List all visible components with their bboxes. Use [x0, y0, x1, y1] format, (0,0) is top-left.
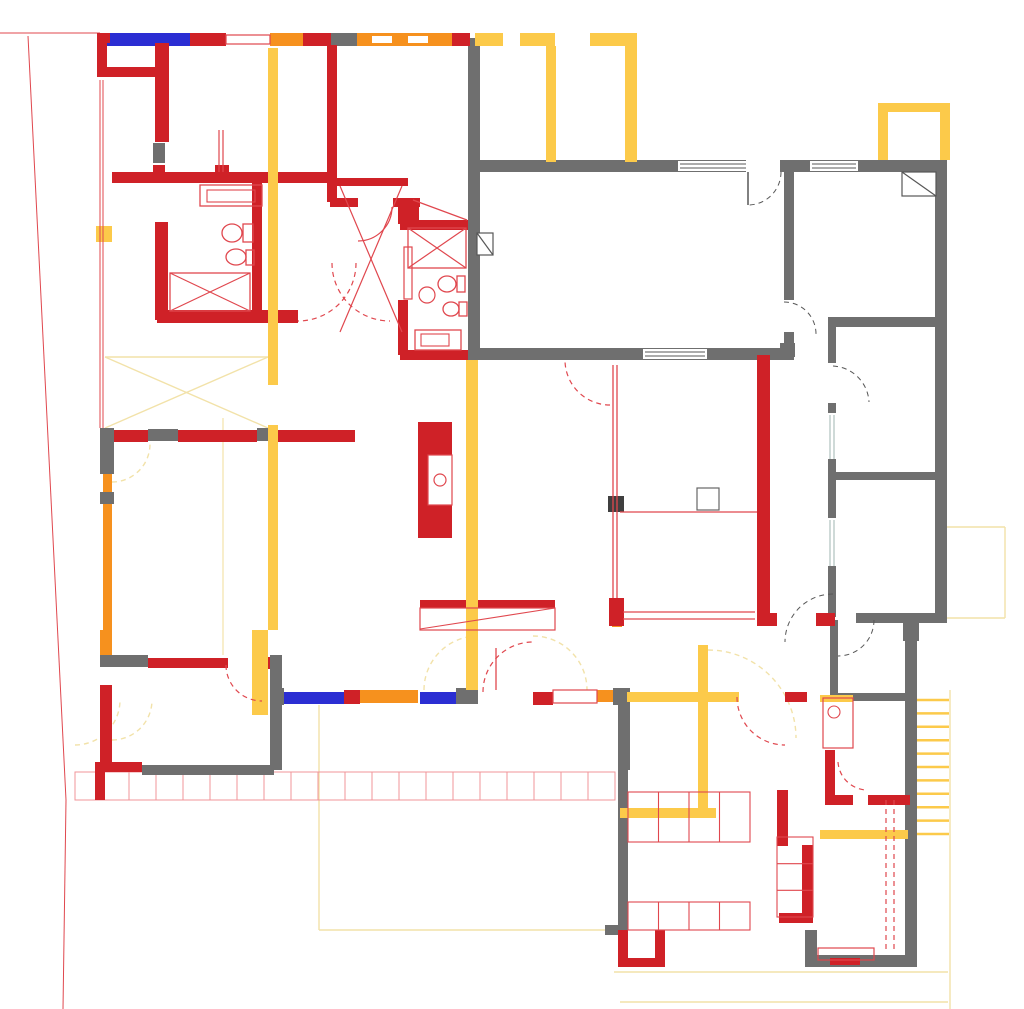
wall-existing — [828, 472, 947, 480]
wall-demolition — [590, 33, 637, 46]
window-new — [100, 33, 190, 46]
window-slit — [408, 36, 428, 43]
wall-demolition — [597, 690, 613, 702]
bidet-icon — [226, 249, 246, 265]
wall-existing — [468, 160, 480, 360]
wall-demolition — [820, 830, 908, 839]
door-arc — [838, 620, 874, 656]
wall-existing — [784, 172, 794, 302]
wall-existing — [805, 955, 917, 967]
window-demolition — [360, 690, 418, 703]
wall-new — [344, 690, 360, 704]
wall-demolition — [627, 692, 739, 702]
sideboard-top — [420, 600, 555, 608]
toilet-tank — [243, 224, 253, 242]
wall-existing — [270, 655, 282, 770]
window-new — [284, 692, 344, 704]
wall-demolition — [103, 504, 112, 630]
old-door-arc — [112, 700, 152, 740]
wall-new — [155, 222, 168, 320]
wall-new — [303, 33, 331, 46]
window-demolition — [357, 33, 453, 46]
washbasin-counter — [823, 698, 853, 748]
wall-new — [100, 685, 112, 765]
toilet-tank — [457, 276, 465, 292]
wall-existing — [142, 765, 274, 775]
wall-existing — [618, 768, 628, 932]
vanity-basin — [421, 334, 449, 346]
partition-mullion — [608, 496, 624, 512]
wall-new — [95, 772, 105, 800]
wall-new — [609, 598, 624, 626]
wall-new — [618, 958, 665, 967]
wall-new — [330, 198, 358, 207]
window-existing — [678, 161, 748, 171]
wall-new — [757, 355, 770, 617]
wall-new — [215, 165, 229, 173]
wall-new — [816, 613, 835, 626]
wall-demolition — [546, 46, 556, 162]
wall-new — [97, 33, 110, 43]
wall-new — [779, 913, 813, 923]
wall-demolition — [270, 33, 304, 46]
wall-new — [153, 165, 165, 183]
door-arc-new — [358, 207, 392, 241]
wall-new — [155, 43, 169, 142]
old-door-arc — [75, 700, 120, 745]
wall-existing — [618, 700, 630, 770]
old-door-arc — [112, 444, 150, 482]
wall-existing — [830, 620, 838, 695]
wall-new — [785, 692, 807, 702]
island-counter-cut — [428, 455, 452, 505]
chimney-demolition — [878, 103, 888, 160]
wall-existing — [270, 688, 284, 705]
door-arc-new — [838, 762, 866, 790]
wall-existing — [935, 160, 947, 617]
old-door-arc — [533, 636, 587, 690]
door-arc-new — [483, 642, 533, 692]
wall-existing — [100, 492, 114, 504]
property-line-southwest — [63, 800, 66, 1009]
wall-demolition — [698, 698, 708, 810]
wall-existing — [605, 925, 620, 935]
wall-new — [114, 430, 148, 442]
property-line-west — [28, 36, 66, 800]
wall-new — [757, 613, 777, 626]
wall-existing — [468, 348, 790, 360]
window-existing — [828, 518, 836, 566]
wall-existing — [905, 620, 917, 967]
vanity-icon — [415, 330, 461, 350]
door-arc-new — [298, 263, 356, 321]
chimney-demolition — [878, 103, 950, 112]
wall-existing — [148, 429, 178, 441]
wall-existing — [780, 343, 795, 357]
door-arc-new — [332, 263, 390, 321]
wall-existing — [331, 33, 357, 46]
wall-new — [178, 430, 257, 442]
window-slit — [372, 36, 392, 43]
wall-new — [868, 795, 910, 805]
railing-outline — [553, 690, 597, 703]
wall-new — [777, 790, 788, 846]
wall-new — [452, 33, 470, 46]
washbasin-icon — [828, 706, 840, 718]
wall-demolition — [698, 645, 708, 695]
wall-existing — [468, 38, 480, 162]
wall-demolition — [96, 226, 112, 242]
wall-new — [100, 67, 157, 77]
wall-demolition — [252, 630, 268, 715]
door-arc — [748, 172, 781, 205]
wall-new — [825, 750, 835, 800]
bidet-icon — [443, 302, 459, 316]
wall-existing — [153, 143, 165, 163]
wall-demolition — [100, 630, 112, 657]
door-opening — [828, 363, 836, 403]
column-symbol — [697, 488, 719, 510]
door-arc-new — [737, 697, 785, 745]
door-arc — [833, 366, 869, 402]
wall-existing — [100, 428, 114, 474]
floor-plan-canvas — [0, 0, 1024, 1009]
window-sill-new — [830, 958, 860, 965]
window-old-outline — [226, 35, 270, 44]
wall-new — [400, 350, 468, 360]
wall-existing — [456, 688, 478, 704]
bidet-tank — [459, 302, 467, 316]
wall-new — [277, 430, 355, 442]
toilet-icon — [222, 224, 242, 242]
chimney-demolition — [940, 103, 950, 160]
wall-new — [802, 845, 813, 920]
wall-new — [190, 33, 226, 46]
wall-new — [148, 658, 228, 668]
window-new — [420, 692, 456, 704]
wall-new — [330, 178, 408, 186]
wall-demolition — [620, 808, 716, 818]
window-existing — [643, 349, 707, 359]
door-opening — [784, 300, 794, 332]
wall-existing — [856, 613, 947, 623]
wardrobe-diagonal — [413, 200, 467, 220]
wall-new — [825, 795, 853, 805]
door-arc-new — [565, 360, 610, 405]
wall-demolition — [520, 33, 555, 46]
window-existing — [828, 413, 836, 459]
wall-demolition — [475, 33, 503, 46]
wall-demolition — [268, 425, 278, 630]
sink-icon — [419, 287, 435, 303]
wall-demolition — [625, 46, 637, 162]
window-existing — [810, 161, 858, 171]
wall-demolition — [268, 48, 278, 385]
wall-demolition — [466, 360, 478, 690]
wall-existing — [828, 317, 947, 327]
floor-plan-page — [0, 0, 1024, 1009]
wall-demolition — [103, 473, 112, 493]
sideboard-diagonal — [420, 608, 555, 629]
wall-new — [112, 172, 332, 183]
door-opening — [746, 160, 780, 172]
wall-existing — [100, 655, 148, 667]
toilet-icon — [438, 276, 456, 292]
bathtub-icon-inner — [207, 190, 255, 202]
wall-new — [533, 692, 553, 705]
